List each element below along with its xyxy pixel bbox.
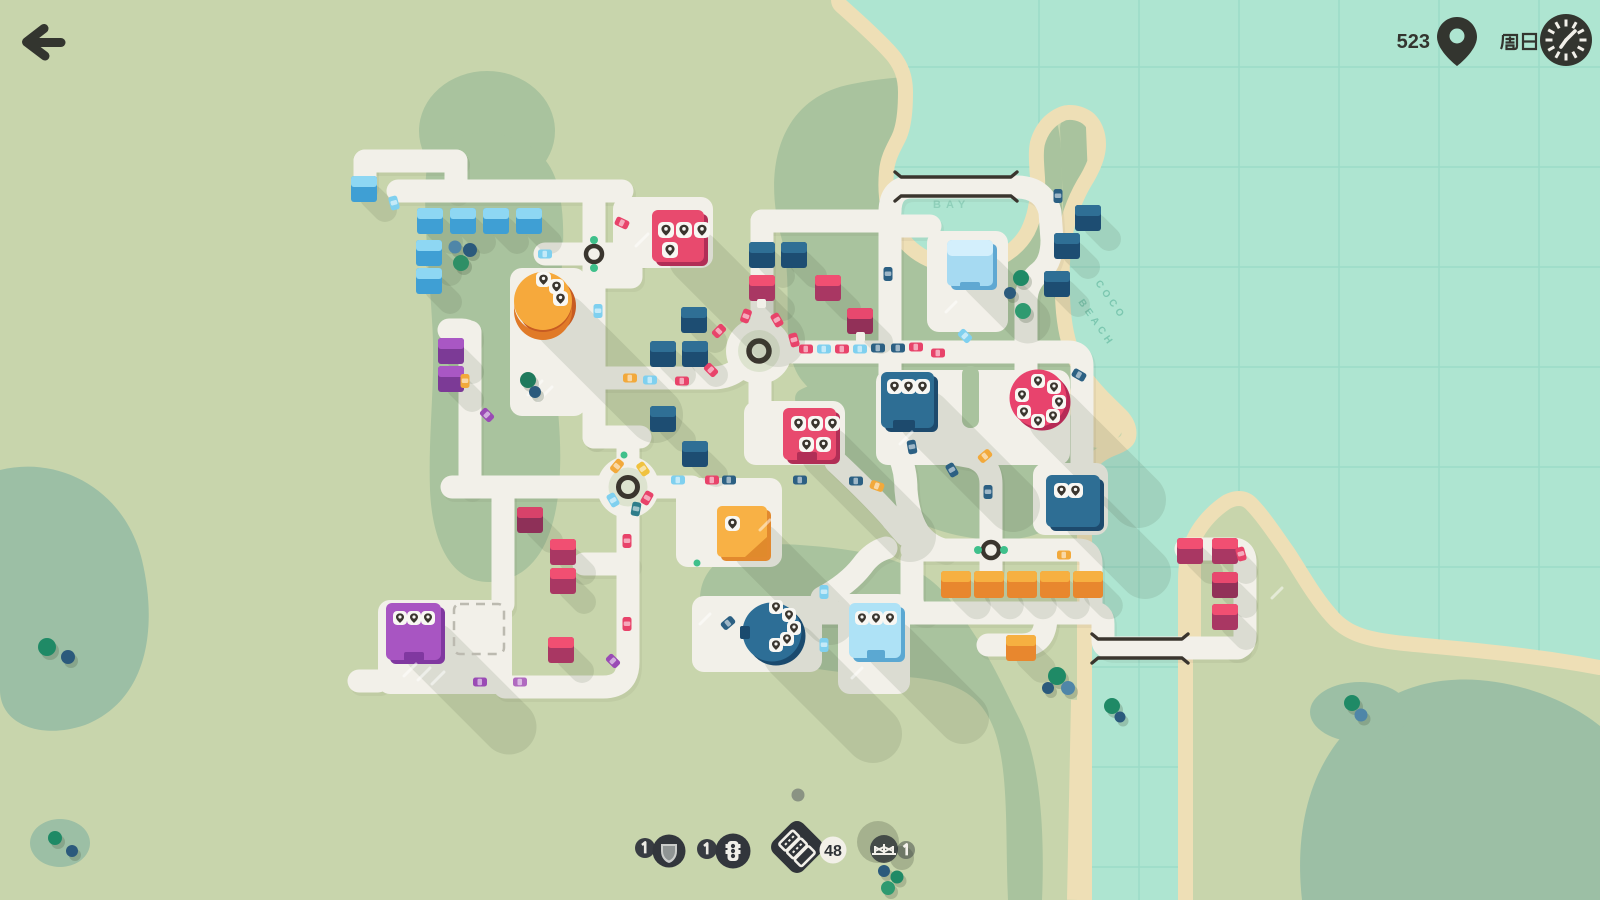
svg-text:523: 523 xyxy=(1397,31,1430,53)
svg-text:48: 48 xyxy=(824,843,842,860)
